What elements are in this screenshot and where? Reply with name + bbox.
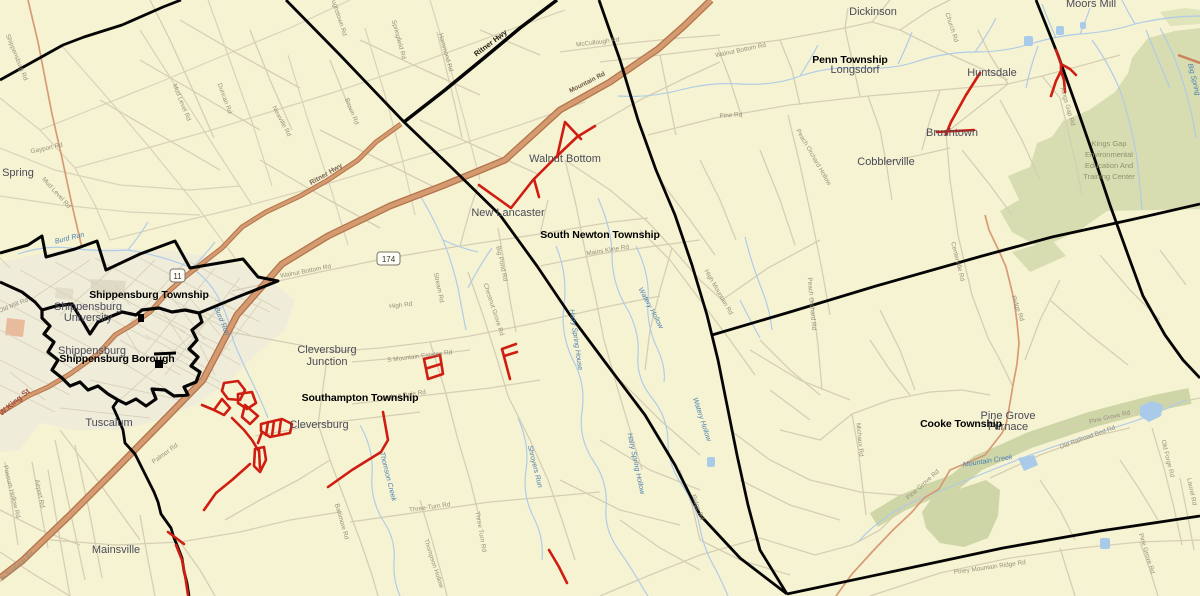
svg-text:Cooke Township: Cooke Township	[920, 418, 1002, 430]
svg-text:Tuscalum: Tuscalum	[85, 417, 132, 429]
svg-text:South Newton Township: South Newton Township	[540, 229, 660, 241]
svg-text:Moors Mill: Moors Mill	[1066, 0, 1116, 10]
svg-text:Brushtown: Brushtown	[926, 127, 978, 139]
svg-text:Junction: Junction	[307, 356, 348, 368]
svg-text:174: 174	[382, 255, 396, 264]
svg-text:Penn Township: Penn Township	[812, 54, 888, 66]
svg-text:Environmental: Environmental	[1085, 150, 1133, 159]
svg-text:Cleversburg: Cleversburg	[289, 419, 348, 431]
svg-text:New Lancaster: New Lancaster	[471, 207, 545, 219]
svg-text:Walnut Bottom: Walnut Bottom	[529, 153, 601, 165]
svg-text:Shippensburg Township: Shippensburg Township	[89, 289, 209, 301]
svg-text:Southampton Township: Southampton Township	[302, 392, 419, 404]
svg-text:University: University	[64, 312, 113, 324]
svg-text:Education And: Education And	[1085, 161, 1133, 170]
svg-text:11: 11	[173, 272, 182, 281]
svg-text:Spring: Spring	[2, 167, 34, 179]
svg-text:Kings Gap: Kings Gap	[1091, 139, 1126, 148]
svg-text:Cleversburg: Cleversburg	[297, 344, 356, 356]
svg-text:Dickinson: Dickinson	[849, 6, 897, 18]
svg-text:Huntsdale: Huntsdale	[967, 67, 1017, 79]
svg-text:Cobblerville: Cobblerville	[857, 156, 914, 168]
svg-text:Mainsville: Mainsville	[92, 544, 140, 556]
svg-text:Shippensburg Borough: Shippensburg Borough	[59, 353, 174, 365]
svg-text:Training Center: Training Center	[1083, 172, 1135, 181]
